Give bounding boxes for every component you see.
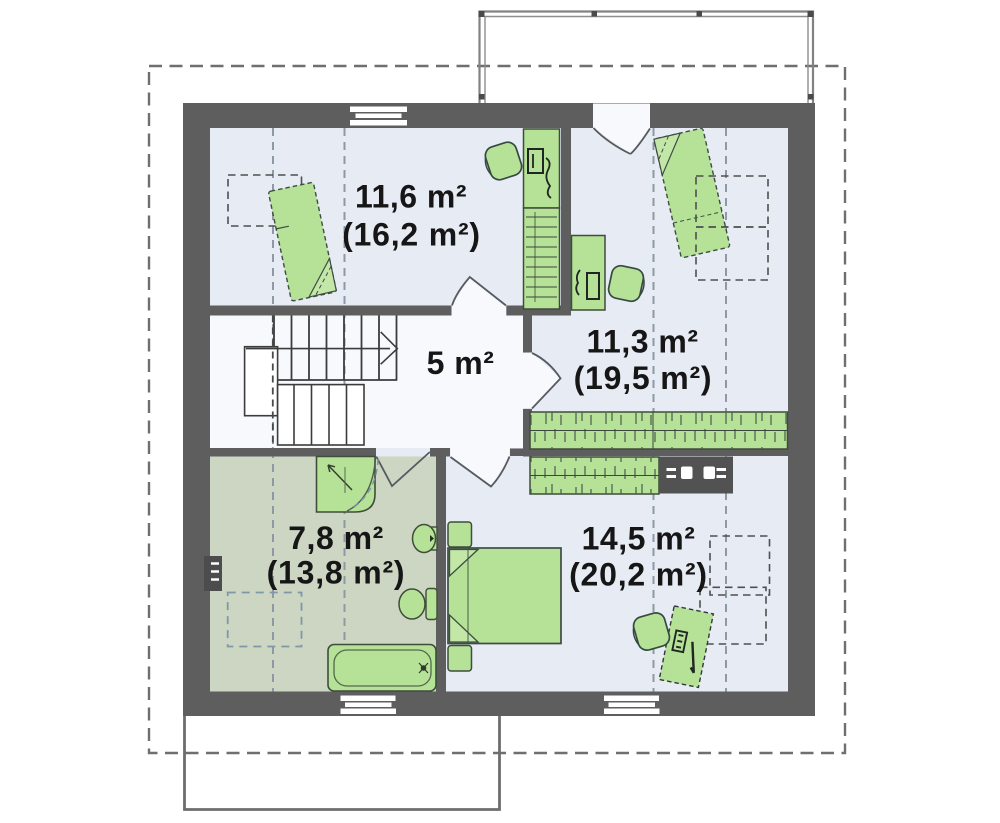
svg-text:14,5 m²: 14,5 m² xyxy=(582,521,696,557)
svg-text:(16,2 m²): (16,2 m²) xyxy=(342,217,481,253)
svg-text:5 m²: 5 m² xyxy=(427,345,495,381)
svg-text:(20,2 m²): (20,2 m²) xyxy=(569,557,708,593)
svg-text:11,3 m²: 11,3 m² xyxy=(586,324,698,360)
svg-text:7,8 m²: 7,8 m² xyxy=(288,520,383,556)
svg-text:11,6 m²: 11,6 m² xyxy=(355,179,467,215)
svg-text:(19,5 m²): (19,5 m²) xyxy=(574,360,713,396)
svg-text:(13,8 m²): (13,8 m²) xyxy=(267,555,406,591)
